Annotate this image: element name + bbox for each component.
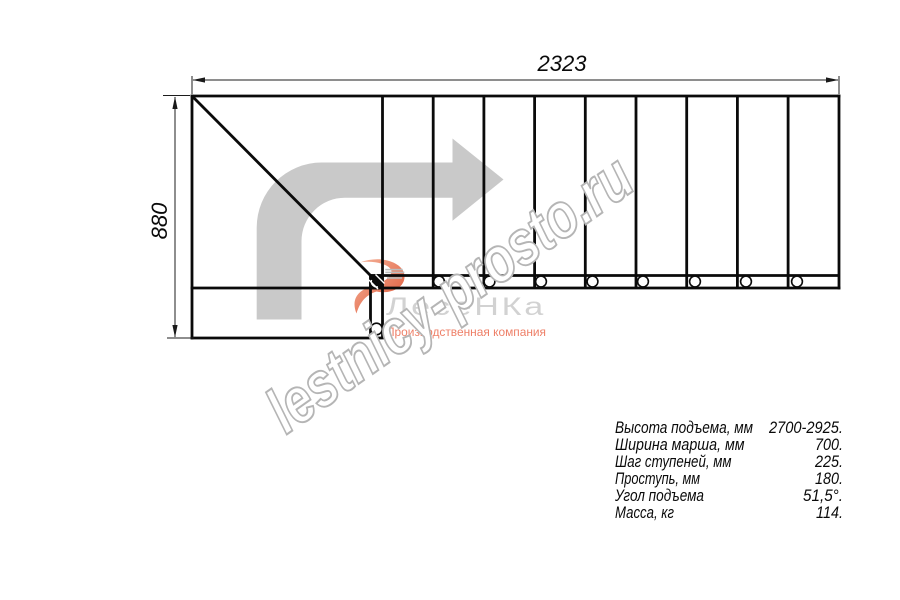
svg-text:2323: 2323 — [537, 51, 588, 76]
svg-text:Масса, кг: Масса, кг — [615, 503, 674, 522]
svg-text:880: 880 — [147, 202, 172, 239]
svg-text:114.: 114. — [816, 503, 843, 522]
